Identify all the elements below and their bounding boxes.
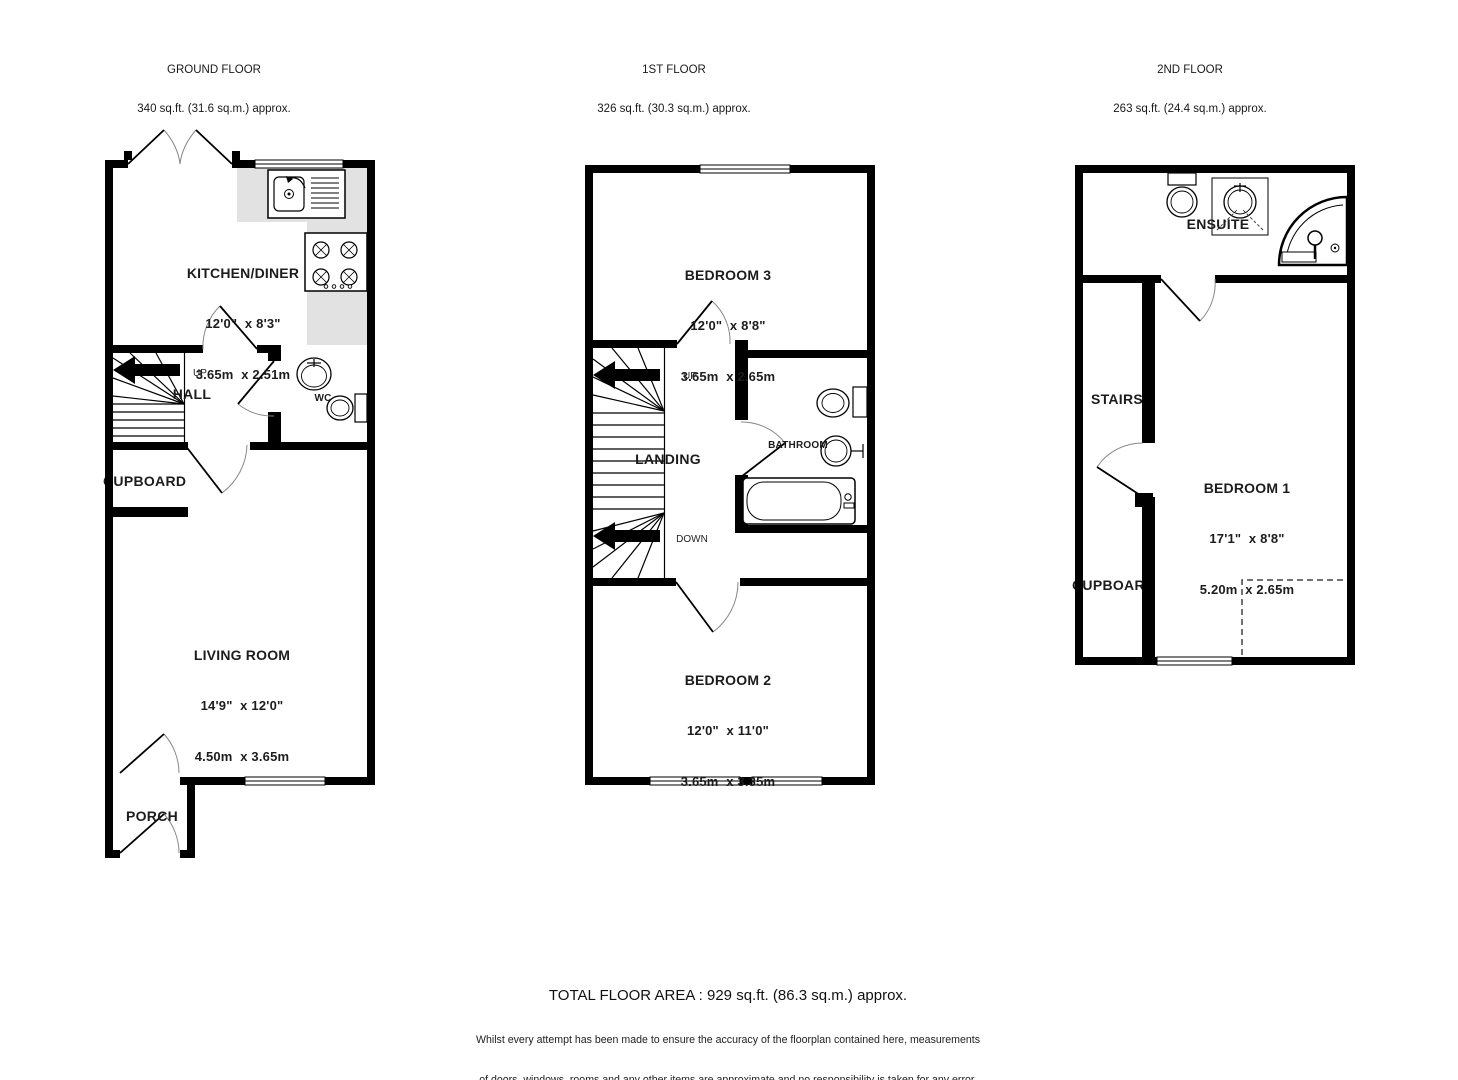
floor-area: 326 sq.ft. (30.3 sq.m.) approx. [597,103,750,116]
floor-area: 263 sq.ft. (24.4 sq.m.) approx. [1113,103,1266,116]
stairs-up-label: UP [683,371,697,382]
hob-icon [305,233,367,291]
disclaimer-line: Whilst every attempt has been made to en… [473,1034,983,1047]
wc-sink-icon [297,358,331,390]
floor-title: 1ST FLOOR [597,64,750,77]
window [1157,657,1232,665]
room-dims-imperial: 12'0" x 8'8" [681,319,776,334]
floor-title: 2ND FLOOR [1113,64,1266,77]
stairs-down-label: DOWN [676,534,708,545]
room-dims-metric: 4.50m x 3.65m [194,750,290,765]
floorplan-page: GROUND FLOOR 340 sq.ft. (31.6 sq.m.) app… [0,0,1458,1080]
room-dims-imperial: 17'1" x 8'8" [1200,532,1295,547]
down-arrow-icon [593,522,660,550]
bath-icon [743,478,855,524]
floor-area: 340 sq.ft. (31.6 sq.m.) approx. [137,103,290,116]
room-dims-imperial: 12'0" x 11'0" [681,724,776,739]
floor-title: GROUND FLOOR [137,64,290,77]
room-dims-imperial: 14'9" x 12'0" [194,699,290,714]
doors [1097,279,1215,497]
room-label-stairs: STAIRS [1091,391,1143,407]
room-dims-metric: 3.65m x 3.35m [681,775,776,790]
room-label-landing: LANDING [635,451,701,467]
room-label-ensuite: ENSUITE [1187,216,1250,232]
total-floor-area: TOTAL FLOOR AREA : 929 sq.ft. (86.3 sq.m… [549,987,907,1004]
room-label-bedroom3: BEDROOM 3 12'0" x 8'8" 3.65m x 2.65m [681,232,776,420]
room-label-cupboard: CUPBOARD [1072,577,1155,593]
ground-floor-header: GROUND FLOOR 340 sq.ft. (31.6 sq.m.) app… [137,38,290,142]
room-name: BEDROOM 3 [681,268,776,283]
room-label-bathroom: BATHROOM [768,440,828,451]
corner-shower-icon [1279,197,1347,265]
room-name: BEDROOM 2 [681,673,776,688]
second-floor-header: 2ND FLOOR 263 sq.ft. (24.4 sq.m.) approx… [1113,38,1266,142]
first-floor-header: 1ST FLOOR 326 sq.ft. (30.3 sq.m.) approx… [597,38,750,142]
disclaimer: Whilst every attempt has been made to en… [473,1008,983,1080]
room-label-living: LIVING ROOM 14'9" x 12'0" 4.50m x 3.65m [194,612,290,800]
wc-toilet-icon [327,394,367,422]
room-label-wc: WC [314,393,331,404]
kitchen-sink-icon [268,170,345,218]
room-label-bedroom2: BEDROOM 2 12'0" x 11'0" 3.65m x 3.35m [681,637,776,825]
room-dims-metric: 5.20m x 2.65m [1200,583,1295,598]
room-name: BEDROOM 1 [1200,481,1295,496]
room-label-hall: HALL [173,386,212,402]
room-name: KITCHEN/DINER [187,266,299,281]
up-arrow-icon [593,361,660,389]
toilet-icon [1167,173,1197,217]
toilet-icon [817,387,867,417]
room-label-porch: PORCH [126,808,178,824]
room-label-cupboard: CUPBOARD [103,473,186,489]
room-label-bedroom1: BEDROOM 1 17'1" x 8'8" 5.20m x 2.65m [1200,445,1295,633]
stairs-up-label: UP [193,368,207,379]
disclaimer-line: of doors, windows, rooms and any other i… [473,1074,983,1080]
room-dims-imperial: 12'0" x 8'3" [187,317,299,332]
up-arrow-icon [113,356,180,384]
room-name: LIVING ROOM [194,648,290,663]
